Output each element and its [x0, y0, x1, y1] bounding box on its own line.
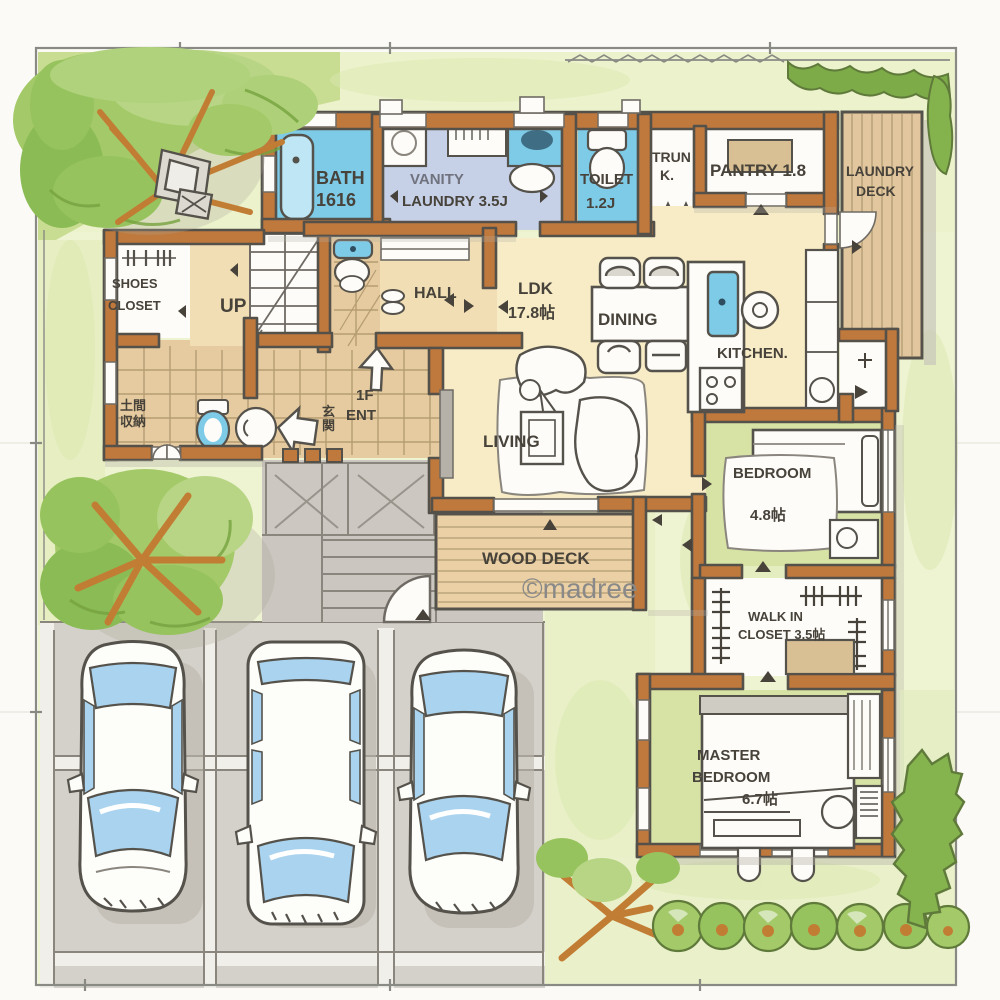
svg-text:K.: K.: [660, 167, 674, 183]
svg-text:LDK: LDK: [518, 279, 554, 298]
svg-text:BEDROOM: BEDROOM: [733, 465, 811, 482]
svg-text:ENT: ENT: [346, 407, 376, 424]
svg-text:KITCHEN.: KITCHEN.: [717, 345, 788, 362]
svg-text:関: 関: [322, 418, 335, 433]
svg-text:土間: 土間: [120, 398, 146, 413]
svg-text:玄: 玄: [322, 404, 335, 419]
svg-text:1616: 1616: [316, 190, 356, 210]
svg-text:LIVING: LIVING: [483, 432, 540, 451]
svg-text:PANTRY 1.8: PANTRY 1.8: [710, 161, 806, 180]
svg-text:DINING: DINING: [598, 310, 658, 329]
svg-text:BATH: BATH: [316, 168, 365, 188]
svg-text:CLOSET: CLOSET: [108, 298, 161, 313]
svg-text:TOILET: TOILET: [580, 171, 633, 188]
svg-text:4.8帖: 4.8帖: [750, 506, 786, 524]
svg-text:LAUNDRY: LAUNDRY: [846, 163, 915, 179]
svg-text:MASTER: MASTER: [697, 747, 761, 764]
svg-text:DECK: DECK: [856, 183, 896, 199]
svg-text:17.8帖: 17.8帖: [508, 303, 555, 322]
svg-text:CLOSET 3.5帖: CLOSET 3.5帖: [738, 627, 825, 642]
svg-text:UP: UP: [220, 296, 247, 317]
svg-text:HALL: HALL: [414, 285, 457, 302]
svg-text:TRUN: TRUN: [652, 149, 691, 165]
svg-text:WOOD DECK: WOOD DECK: [482, 549, 590, 568]
svg-text:収納: 収納: [120, 414, 146, 429]
svg-text:VANITY: VANITY: [410, 171, 464, 188]
svg-text:©madree: ©madree: [522, 573, 638, 604]
svg-text:WALK IN: WALK IN: [748, 609, 803, 624]
svg-text:1.2J: 1.2J: [586, 195, 615, 212]
svg-text:1F: 1F: [356, 387, 374, 404]
svg-text:LAUNDRY 3.5J: LAUNDRY 3.5J: [402, 193, 508, 210]
svg-text:BEDROOM: BEDROOM: [692, 769, 770, 786]
svg-text:6.7帖: 6.7帖: [742, 790, 778, 808]
svg-text:SHOES: SHOES: [112, 276, 158, 291]
